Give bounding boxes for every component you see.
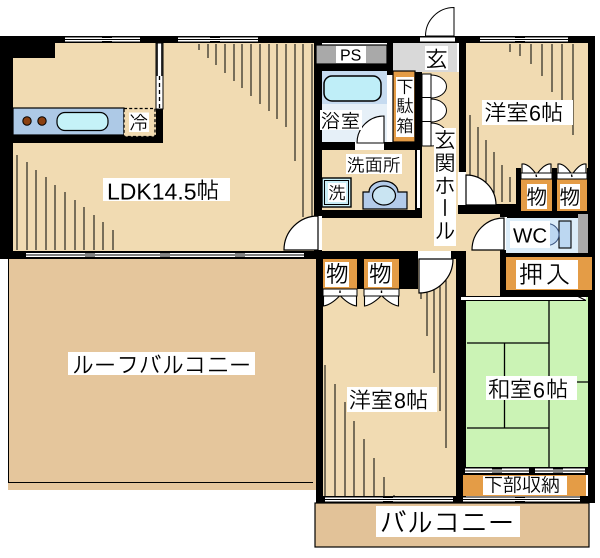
svg-text:8: 8: [394, 389, 406, 413]
svg-text:WC: WC: [513, 225, 547, 248]
svg-text:6: 6: [533, 379, 545, 403]
svg-text:LDK14.5: LDK14.5: [107, 179, 197, 205]
svg-text:PS: PS: [340, 48, 361, 65]
svg-text:6: 6: [529, 102, 541, 126]
